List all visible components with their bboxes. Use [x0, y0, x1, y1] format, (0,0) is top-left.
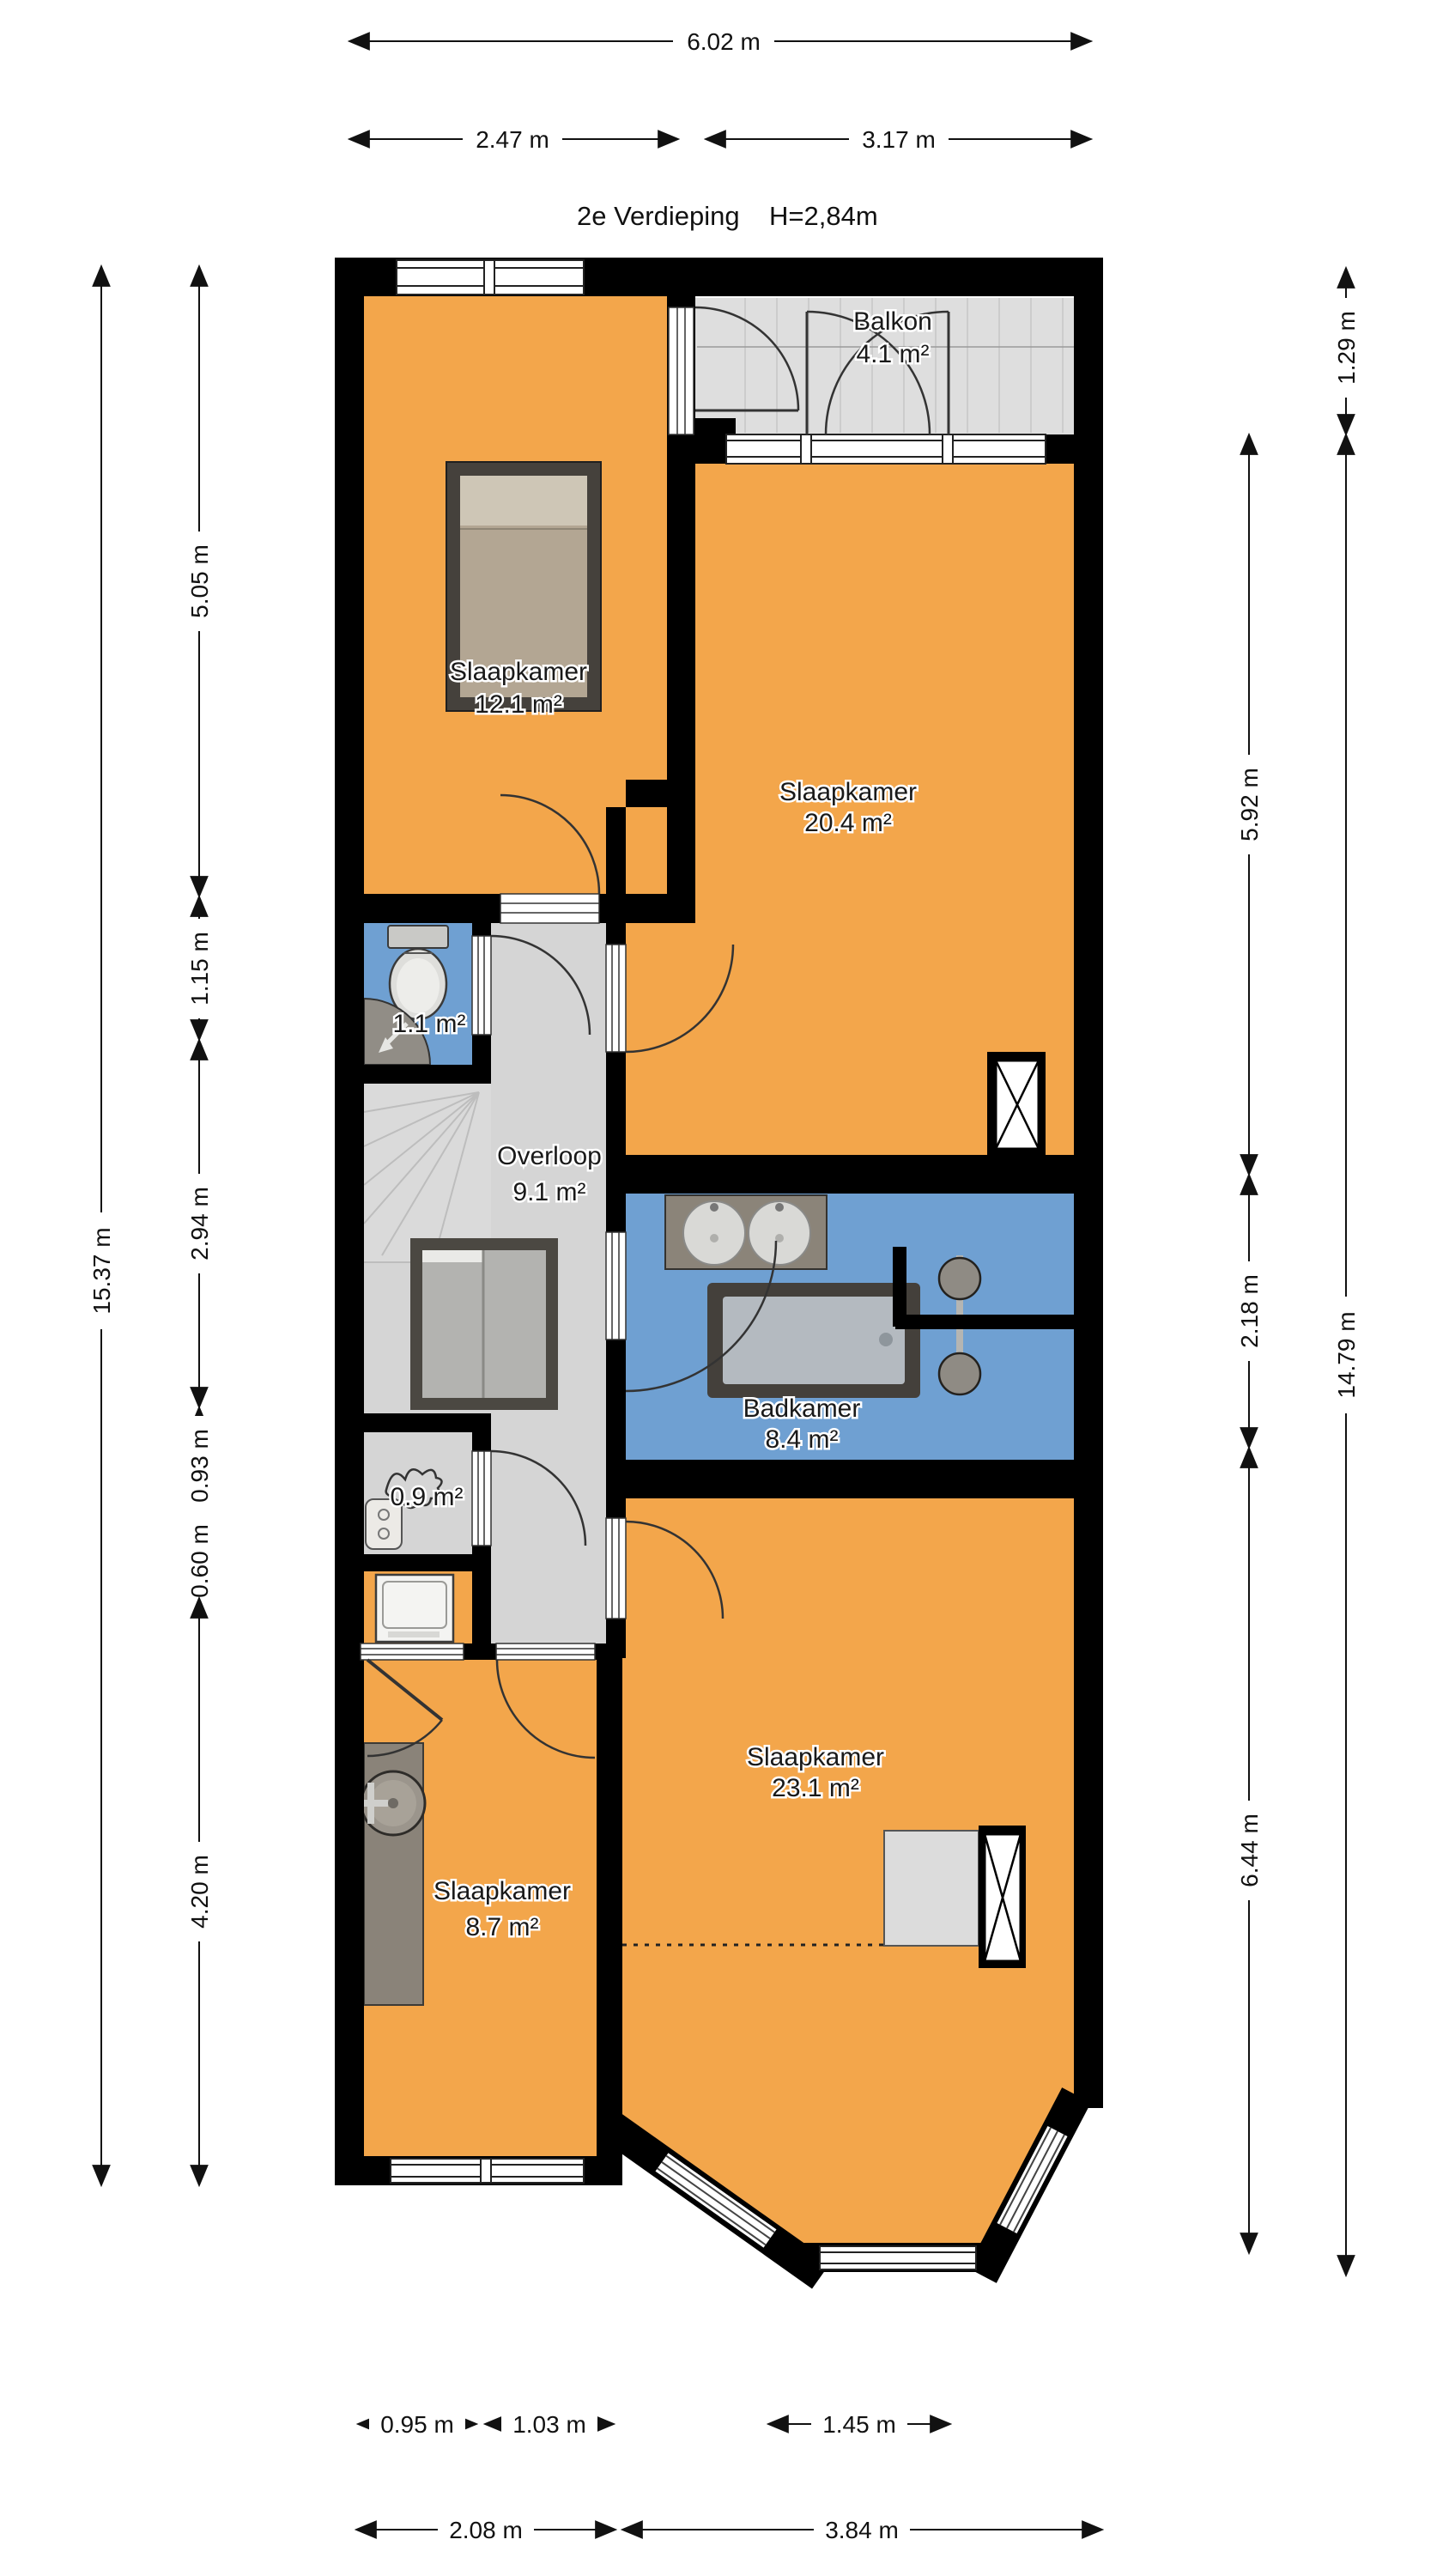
label-slaapkamer-12-area: 12.1 m² [475, 690, 562, 719]
door-frame-20 [606, 945, 626, 1052]
dim-left-overall: 15.37 m [88, 1227, 115, 1314]
label-kast-area: 0.9 m² [390, 1483, 463, 1511]
toilet-icon [388, 926, 448, 1019]
dim-top-left: 2.47 m [476, 126, 549, 153]
glass-balustrade-icon [410, 1238, 558, 1410]
dim-bottom-inner-1: 1.03 m [512, 2411, 586, 2438]
wall-left [335, 258, 364, 2185]
door-frame-toilet [472, 936, 491, 1035]
dim-left-5: 4.20 m [186, 1855, 213, 1929]
stairs-icon [364, 1084, 491, 1262]
wall-kast-bottom [335, 1554, 472, 1571]
label-slaapkamer-23-area: 23.1 m² [772, 1774, 859, 1802]
wall-right [1074, 258, 1103, 2108]
door-frame-23 [606, 1518, 626, 1619]
dim-left-3: 0.93 m [186, 1429, 213, 1503]
label-balkon-name: Balkon [853, 307, 932, 336]
dim-bottom-inner-2: 1.45 m [822, 2411, 896, 2438]
wall-toilet-bottom [335, 1065, 491, 1084]
dim-top-right: 3.17 m [862, 126, 936, 153]
label-slaapkamer-23-name: Slaapkamer [747, 1743, 884, 1771]
window-bay-bottom [820, 2246, 976, 2269]
label-badkamer-name: Badkamer [743, 1394, 861, 1423]
door-frame-balkon [669, 307, 694, 434]
ventilation-shaft-icon-2 [985, 1834, 1021, 1961]
dim-right-2: 6.44 m [1236, 1814, 1263, 1887]
door-frame-kast [472, 1451, 491, 1546]
window-balkon [726, 434, 1046, 464]
dim-left-2: 2.94 m [186, 1187, 213, 1261]
label-slaapkamer-12-name: Slaapkamer [450, 658, 587, 686]
label-overloop-area: 9.1 m² [512, 1178, 585, 1206]
wall-badkamer-top [606, 1155, 1074, 1194]
closet-icon [884, 1831, 979, 1946]
window-bottom-left [391, 2159, 584, 2183]
dim-top-overall: 6.02 m [687, 28, 761, 55]
wall-23-top [606, 1460, 1074, 1498]
dim-left-1: 1.15 m [186, 932, 213, 1005]
dim-bottom-1: 3.84 m [825, 2517, 899, 2543]
wall-20-step [626, 780, 695, 807]
wall-8-23-divider [597, 1658, 622, 2156]
dim-right-1: 2.18 m [1236, 1274, 1263, 1348]
label-balkon-area: 4.1 m² [856, 340, 929, 368]
glazed-partition [361, 1643, 464, 1660]
floorplan-canvas: Balkon 4.1 m² Slaapkamer 12.1 m² Slaapka… [0, 0, 1449, 2576]
label-overloop-name: Overloop [497, 1142, 602, 1170]
dim-left-4: 0.60 m [186, 1524, 213, 1598]
page-title: 2e Verdieping [577, 201, 740, 231]
label-toilet-area: 1.1 m² [392, 1010, 465, 1038]
window-top-left [397, 260, 584, 295]
door-frame-12 [500, 894, 599, 923]
ceiling-height: H=2,84m [769, 201, 878, 231]
dim-right-outer-0: 1.29 m [1333, 311, 1360, 385]
label-badkamer-area: 8.4 m² [765, 1425, 838, 1454]
wall-radiator [895, 1315, 1074, 1329]
door-frame-badkamer [606, 1232, 626, 1340]
washing-machine-icon [376, 1575, 453, 1642]
dim-left-0: 5.05 m [186, 544, 213, 618]
label-slaapkamer-20-area: 20.4 m² [804, 809, 892, 837]
dim-right-outer-1: 14.79 m [1333, 1311, 1360, 1398]
dim-bottom-0: 2.08 m [449, 2517, 523, 2543]
wall-kast-top [335, 1413, 491, 1432]
wall-balkon-corner-right [1046, 434, 1074, 464]
dim-right-0: 5.92 m [1236, 768, 1263, 841]
ventilation-shaft-icon [996, 1060, 1039, 1149]
dim-bottom-inner-0: 0.95 m [380, 2411, 454, 2438]
label-slaapkamer-20-name: Slaapkamer [779, 778, 917, 806]
label-slaapkamer-8-name: Slaapkamer [433, 1877, 571, 1905]
label-slaapkamer-8-area: 8.7 m² [465, 1913, 538, 1941]
double-washbasin-icon [665, 1195, 827, 1269]
door-frame-8 [496, 1643, 595, 1660]
washbasin-icon [361, 1743, 425, 2005]
